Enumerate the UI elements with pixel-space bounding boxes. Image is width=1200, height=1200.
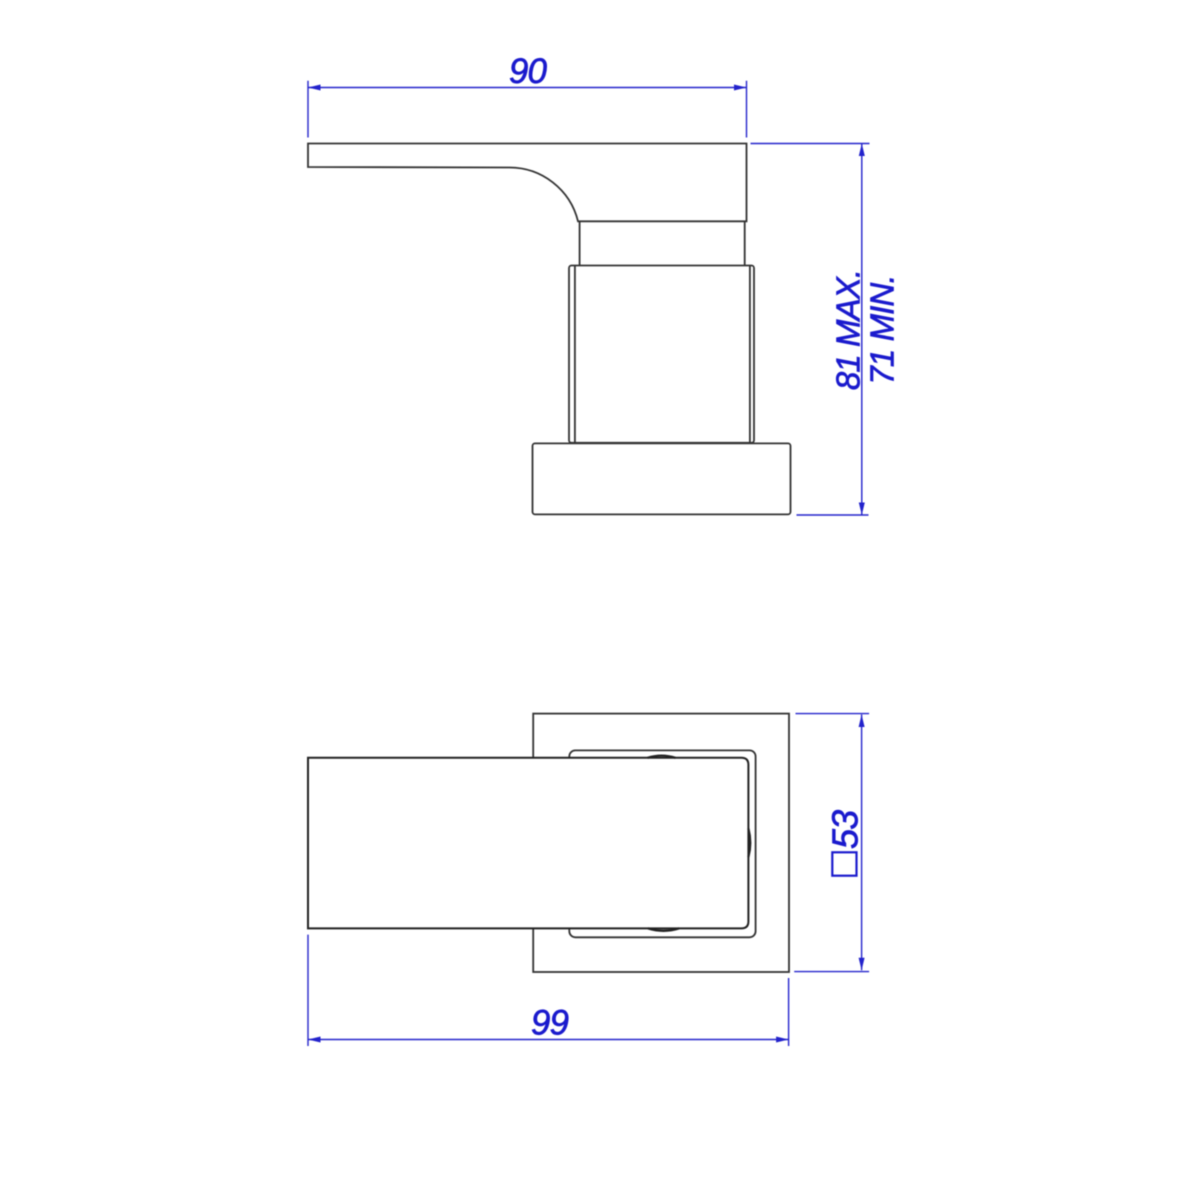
svg-text:81 MAX.: 81 MAX. [830, 270, 867, 390]
svg-text:53: 53 [825, 810, 866, 849]
svg-text:90: 90 [509, 52, 548, 91]
svg-text:99: 99 [531, 1004, 569, 1043]
svg-text:71 MIN.: 71 MIN. [864, 275, 901, 384]
